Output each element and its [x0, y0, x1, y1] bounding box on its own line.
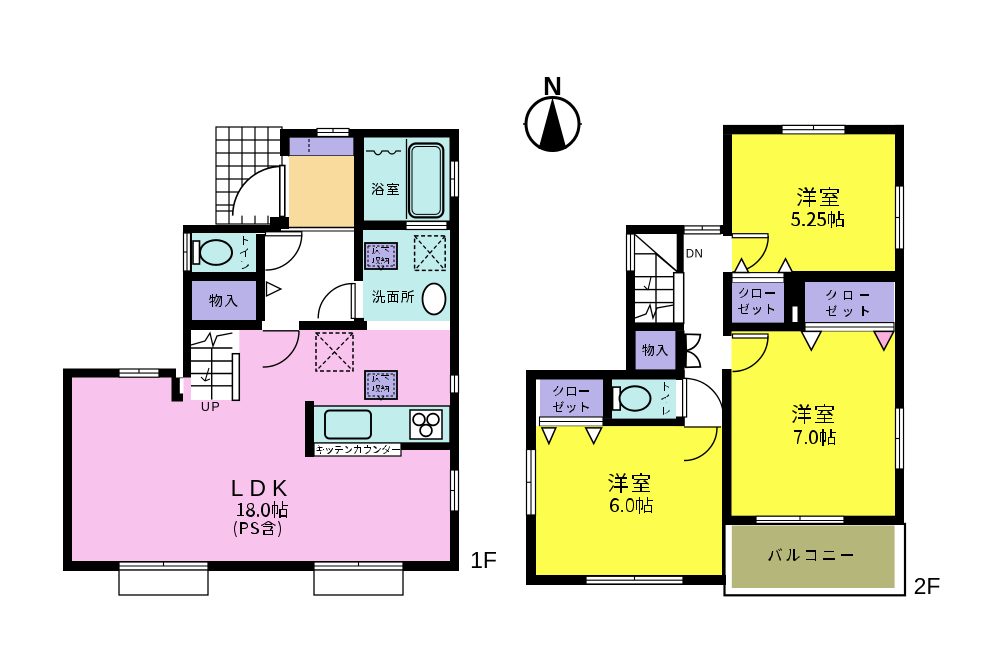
svg-text:2F: 2F [914, 573, 941, 599]
svg-text:LDK: LDK [231, 475, 294, 501]
svg-text:UP: UP [201, 400, 221, 414]
svg-text:1F: 1F [470, 547, 497, 573]
svg-text:DN: DN [686, 249, 704, 261]
svg-text:N: N [543, 71, 562, 101]
